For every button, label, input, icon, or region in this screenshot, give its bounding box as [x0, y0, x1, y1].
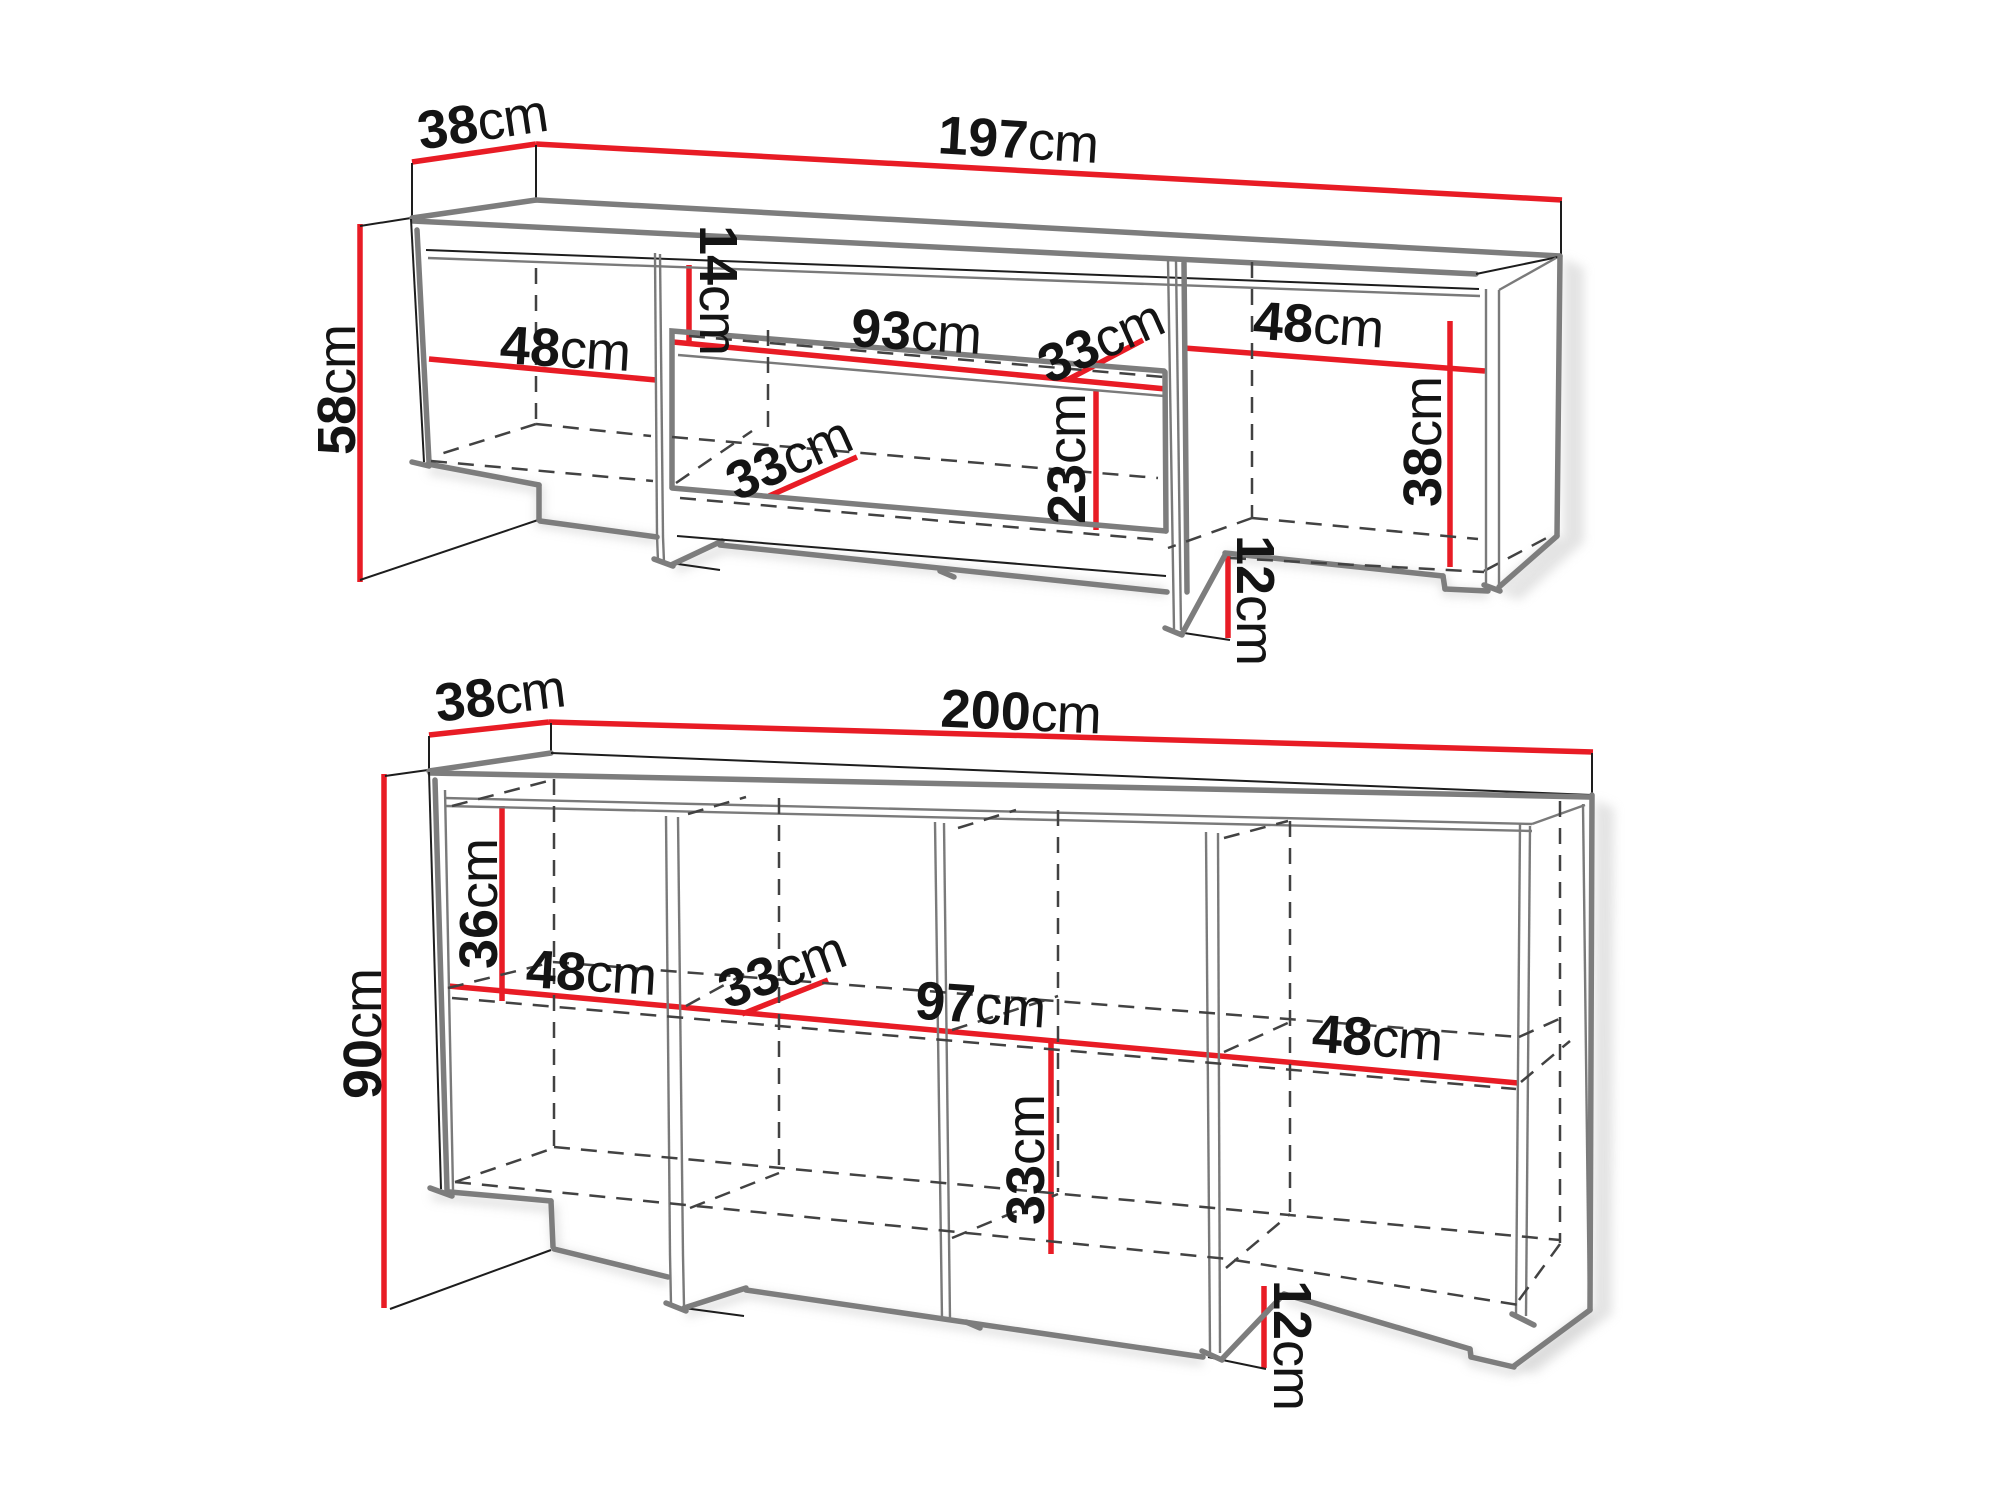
svg-text:38cm: 38cm	[1393, 377, 1453, 507]
svg-text:197cm: 197cm	[936, 105, 1099, 175]
svg-text:48cm: 48cm	[498, 315, 631, 383]
svg-text:48cm: 48cm	[1251, 291, 1385, 360]
svg-text:12cm: 12cm	[1225, 535, 1285, 665]
svg-text:93cm: 93cm	[849, 298, 982, 366]
svg-text:36cm: 36cm	[449, 839, 509, 969]
svg-text:48cm: 48cm	[1310, 1004, 1444, 1073]
svg-text:12cm: 12cm	[1262, 1280, 1322, 1410]
svg-text:33cm: 33cm	[996, 1095, 1056, 1225]
svg-text:14cm: 14cm	[688, 225, 748, 355]
svg-text:23cm: 23cm	[1037, 394, 1097, 524]
svg-text:48cm: 48cm	[524, 939, 657, 1007]
svg-text:200cm: 200cm	[940, 679, 1103, 746]
svg-text:58cm: 58cm	[307, 325, 367, 455]
svg-text:97cm: 97cm	[913, 971, 1047, 1040]
svg-text:90cm: 90cm	[333, 969, 393, 1099]
